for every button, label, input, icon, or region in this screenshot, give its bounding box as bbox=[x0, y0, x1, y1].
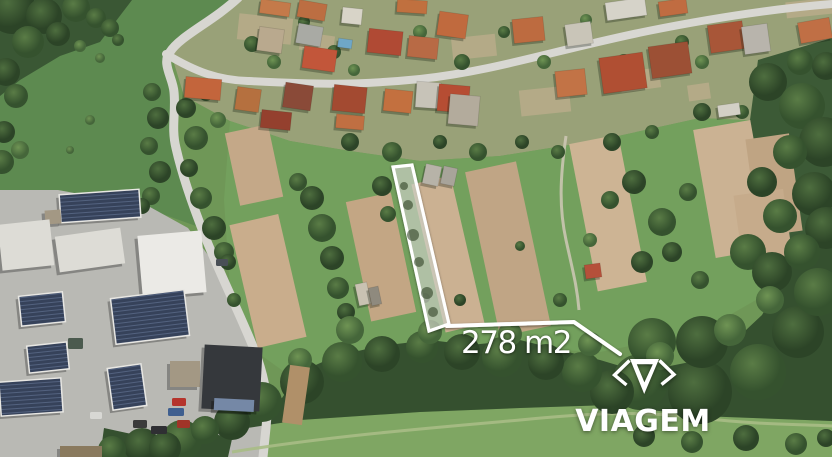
house bbox=[260, 109, 292, 130]
tree bbox=[12, 26, 44, 58]
tree bbox=[785, 433, 807, 455]
tree bbox=[327, 277, 349, 299]
house bbox=[555, 69, 588, 98]
tree bbox=[787, 49, 813, 75]
tree bbox=[433, 135, 447, 149]
tree bbox=[320, 246, 344, 270]
tree bbox=[149, 161, 171, 183]
house bbox=[717, 103, 740, 118]
parcel-vegetation-blob bbox=[407, 229, 419, 241]
solar-roof-building bbox=[19, 292, 66, 326]
industrial-building bbox=[0, 219, 54, 270]
brand-wordmark: VIAGEM bbox=[560, 407, 726, 437]
tree bbox=[372, 176, 392, 196]
car bbox=[133, 420, 147, 428]
house bbox=[648, 41, 692, 78]
tree bbox=[691, 271, 709, 289]
gem-right-facet bbox=[660, 361, 675, 385]
house bbox=[512, 16, 545, 43]
house bbox=[335, 114, 364, 130]
tree bbox=[176, 98, 196, 118]
tree bbox=[336, 316, 364, 344]
property-aerial-screenshot: 278 m2 VIAGEM bbox=[0, 0, 832, 457]
tree bbox=[267, 55, 281, 69]
tree bbox=[454, 294, 466, 306]
gem-center-facet bbox=[630, 359, 659, 394]
tree bbox=[662, 242, 682, 262]
car bbox=[151, 426, 167, 434]
tree bbox=[733, 425, 759, 451]
tree bbox=[537, 55, 551, 69]
tree bbox=[747, 167, 777, 197]
tree bbox=[289, 173, 307, 191]
gem-left-facet bbox=[615, 361, 630, 386]
house bbox=[407, 35, 439, 59]
tree bbox=[469, 143, 487, 161]
parcel-vegetation-blob bbox=[428, 307, 438, 317]
tree bbox=[4, 84, 28, 108]
tree bbox=[348, 64, 360, 76]
industrial-building bbox=[170, 361, 200, 387]
solar-roof-building bbox=[59, 189, 141, 223]
house bbox=[235, 86, 262, 112]
tree bbox=[380, 206, 396, 222]
house bbox=[367, 28, 403, 55]
tree bbox=[300, 186, 324, 210]
car bbox=[168, 408, 184, 416]
tree bbox=[95, 53, 105, 63]
tree bbox=[202, 216, 226, 240]
car bbox=[90, 412, 102, 419]
car bbox=[172, 398, 186, 406]
industrial-building bbox=[137, 230, 206, 297]
house bbox=[341, 7, 363, 25]
house bbox=[302, 46, 338, 72]
industrial-building bbox=[60, 446, 102, 457]
tree bbox=[730, 344, 786, 400]
tree bbox=[756, 286, 784, 314]
solar-roof-building bbox=[110, 290, 189, 345]
house bbox=[436, 11, 468, 39]
tree bbox=[551, 145, 565, 159]
tree bbox=[622, 170, 646, 194]
tree bbox=[322, 342, 362, 382]
house bbox=[184, 76, 222, 100]
tree bbox=[227, 293, 241, 307]
tree bbox=[66, 146, 74, 154]
tree bbox=[714, 314, 746, 346]
tree bbox=[85, 115, 95, 125]
tree bbox=[763, 199, 797, 233]
parcel-vegetation-blob bbox=[400, 182, 408, 190]
tree bbox=[679, 183, 697, 201]
house bbox=[332, 84, 368, 113]
solar-roof-building bbox=[107, 364, 147, 410]
tree bbox=[74, 40, 86, 52]
tree bbox=[784, 234, 820, 270]
tree bbox=[140, 137, 158, 155]
tree bbox=[648, 208, 676, 236]
tree bbox=[180, 159, 198, 177]
house bbox=[397, 0, 428, 14]
parcel-vegetation-blob bbox=[414, 257, 424, 267]
tree bbox=[11, 141, 29, 159]
house bbox=[256, 26, 284, 53]
tree bbox=[695, 55, 709, 69]
tree bbox=[603, 133, 621, 151]
parcel-vegetation-blob bbox=[421, 287, 433, 299]
solar-roof-building bbox=[0, 378, 63, 416]
house bbox=[282, 82, 313, 111]
tree bbox=[515, 135, 529, 149]
tree bbox=[498, 26, 510, 38]
tree bbox=[364, 336, 400, 372]
house bbox=[565, 21, 594, 46]
car bbox=[216, 259, 228, 266]
parcel-vegetation-blob bbox=[403, 200, 413, 210]
tree bbox=[645, 125, 659, 139]
tree bbox=[454, 54, 470, 70]
area-measurement-label: 278 m2 bbox=[461, 328, 571, 359]
tree bbox=[147, 107, 169, 129]
tree bbox=[631, 251, 653, 273]
tree bbox=[382, 142, 402, 162]
tree bbox=[143, 83, 161, 101]
brand-logo: VIAGEM bbox=[560, 350, 726, 437]
tree bbox=[112, 34, 124, 46]
tree bbox=[773, 135, 807, 169]
house bbox=[448, 94, 481, 127]
tree bbox=[749, 63, 787, 101]
house bbox=[584, 263, 602, 279]
house bbox=[741, 23, 771, 54]
tree bbox=[46, 22, 70, 46]
solar-roof-building bbox=[27, 342, 70, 373]
house bbox=[295, 23, 323, 47]
brand-gem-icon bbox=[602, 350, 684, 400]
tree bbox=[308, 214, 336, 242]
house bbox=[383, 89, 413, 114]
industrial-building bbox=[214, 398, 255, 412]
tree bbox=[693, 103, 711, 121]
house bbox=[599, 52, 648, 94]
tree bbox=[210, 112, 226, 128]
house bbox=[337, 38, 352, 49]
car bbox=[68, 338, 83, 349]
tree bbox=[601, 191, 619, 209]
dirt-patch bbox=[687, 83, 711, 102]
tree bbox=[515, 241, 525, 251]
tree bbox=[583, 233, 597, 247]
tree bbox=[184, 126, 208, 150]
house bbox=[707, 21, 746, 54]
tree bbox=[553, 293, 567, 307]
tree bbox=[190, 187, 212, 209]
tree bbox=[341, 133, 359, 151]
tree bbox=[191, 416, 219, 444]
car bbox=[177, 420, 190, 428]
